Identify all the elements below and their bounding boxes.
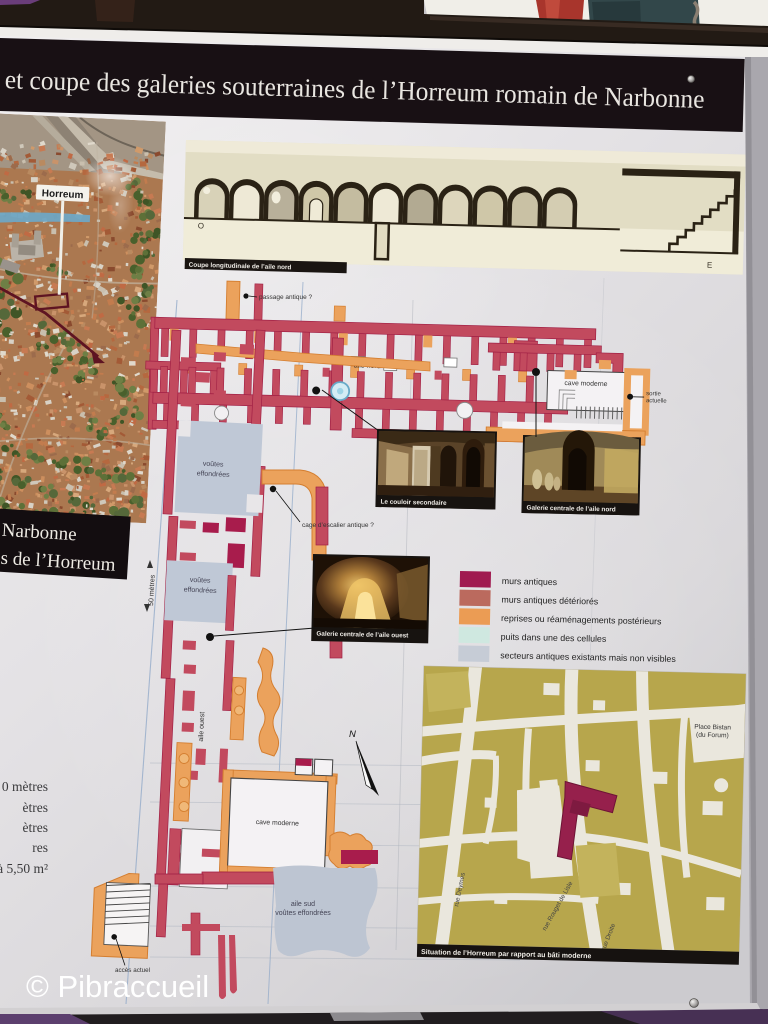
svg-text:0 mètres: 0 mètres [2, 779, 48, 794]
svg-text:Horreum: Horreum [42, 188, 84, 201]
svg-text:Le couloir secondaire: Le couloir secondaire [380, 499, 447, 507]
svg-text:(du Forum): (du Forum) [696, 732, 729, 740]
svg-text:e Narbonne: e Narbonne [0, 519, 77, 545]
svg-text:passage antique ?: passage antique ? [259, 294, 313, 301]
svg-text:voûtes: voûtes [190, 577, 211, 585]
svg-text:ètres: ètres [23, 800, 48, 815]
svg-text:murs antiques détériorés: murs antiques détériorés [501, 594, 599, 606]
svg-text:cave moderne: cave moderne [564, 380, 607, 388]
svg-text:actuelle: actuelle [646, 398, 667, 405]
svg-text:murs antiques: murs antiques [502, 576, 558, 587]
svg-text:sortie: sortie [646, 391, 661, 397]
svg-text:N: N [349, 729, 356, 740]
svg-text:aile ouest: aile ouest [198, 712, 206, 742]
svg-text:ètres: ètres [23, 820, 48, 835]
svg-text:aile sud: aile sud [291, 901, 315, 908]
svg-text:voûtes: voûtes [203, 461, 224, 469]
svg-text:voûtes effondrées: voûtes effondrées [275, 910, 331, 917]
svg-text:E: E [707, 261, 713, 270]
svg-text:O: O [198, 221, 204, 230]
svg-text:res: res [32, 840, 48, 855]
svg-text:© Pibraccueil: © Pibraccueil [26, 969, 209, 1004]
svg-text:cage d’escalier antique ?: cage d’escalier antique ? [302, 522, 374, 529]
svg-text:à 5,50 m²: à 5,50 m² [0, 861, 48, 876]
svg-text:Place Bistan: Place Bistan [694, 724, 731, 732]
